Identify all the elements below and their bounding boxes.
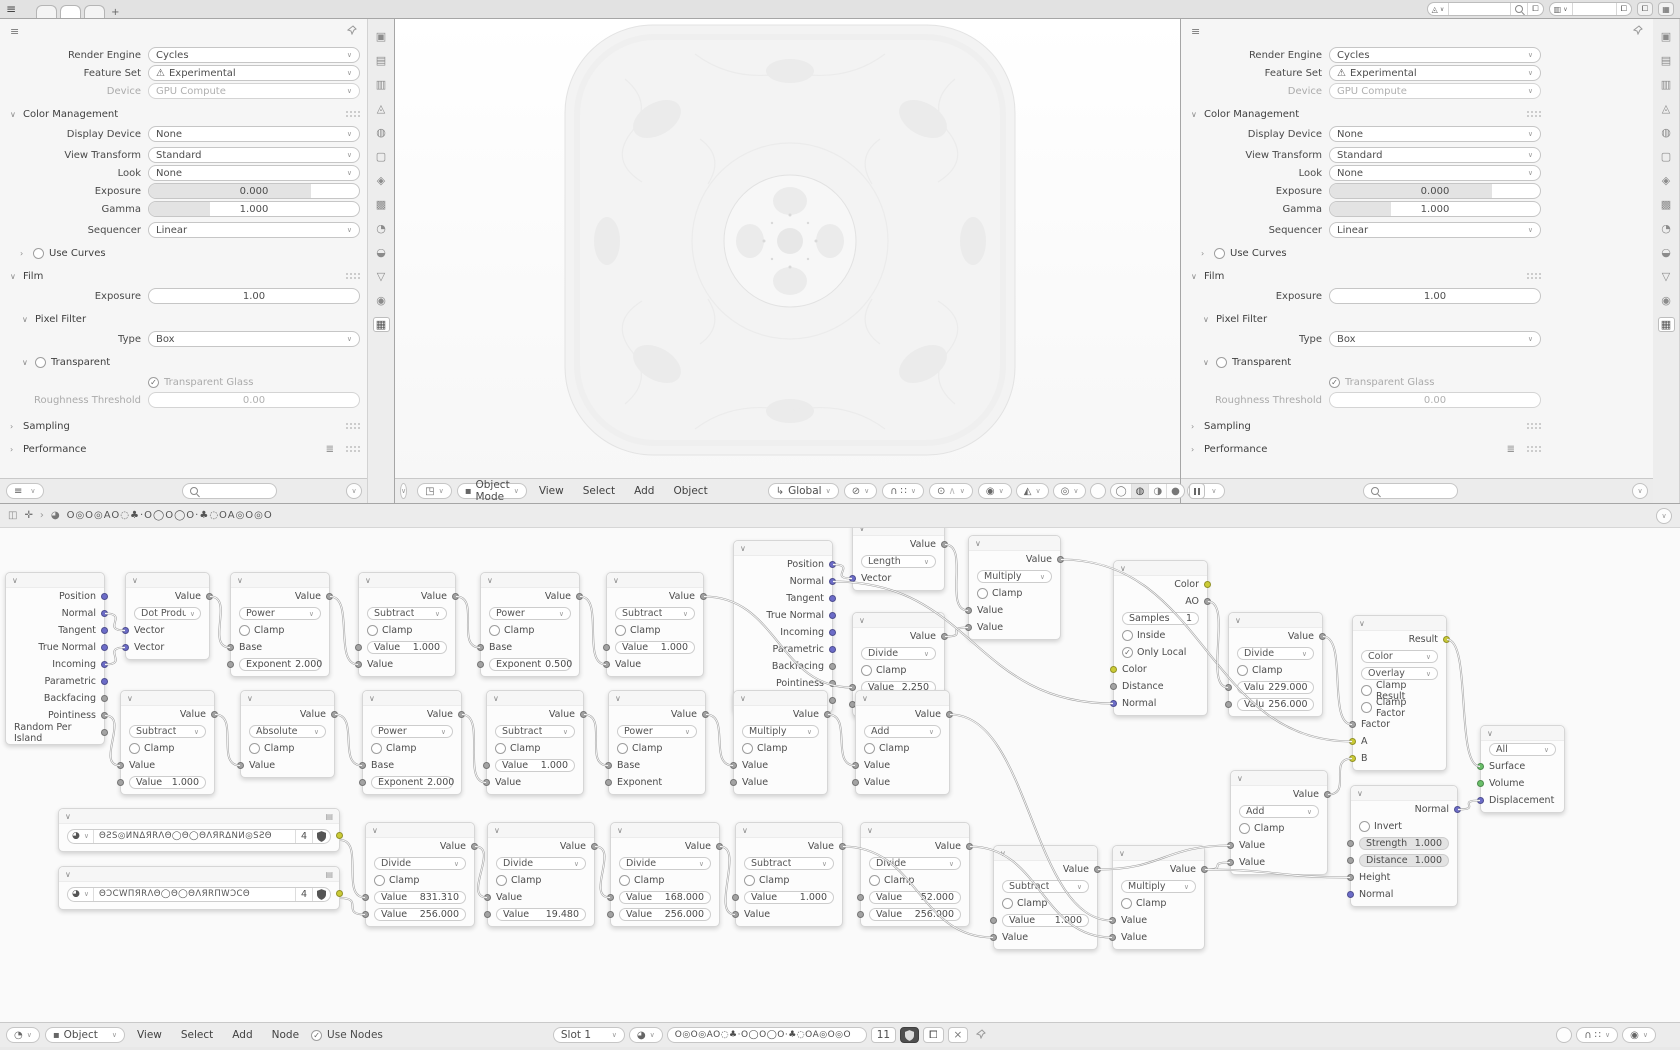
view-layer-tab-icon[interactable]: ◬ [373,101,390,116]
value-field[interactable]: Value1.000 [367,641,447,654]
operation-select[interactable]: Subtract∨ [129,725,206,738]
input-socket[interactable] [852,762,859,769]
collapse-chevron-icon[interactable]: ∨ [494,826,500,835]
value-field[interactable]: Value1.000 [615,641,695,654]
input-socket[interactable] [852,779,859,786]
value-field[interactable]: Value1.000 [1002,914,1089,927]
input-socket[interactable] [484,894,491,901]
value-field[interactable]: Value168.000 [619,891,711,904]
collapse-chevron-icon[interactable]: ∨ [132,576,138,585]
operation-select[interactable]: Overlay∨ [1361,667,1438,680]
input-socket[interactable] [605,762,612,769]
render-engine-select[interactable]: Cycles∨ [1329,47,1541,63]
math-subtract-node[interactable]: ∨ValueSubtract∨ClampValue1.000Value [993,845,1098,950]
modifiers-tab-icon[interactable]: ▩ [1658,197,1675,212]
input-socket[interactable] [359,762,366,769]
math-add-node[interactable]: ∨ValueAdd∨ClampValueValue [1230,770,1328,875]
math-divide-node[interactable]: ∨ValueDivide∨ClampValue831.310Value256.0… [365,822,475,927]
output-socket[interactable] [331,711,338,718]
input-socket[interactable] [122,644,129,651]
output-socket[interactable] [946,711,953,718]
value-field[interactable]: Value831.310 [374,891,466,904]
section-film[interactable]: ∨Film [10,268,360,284]
show-gizmo-toggle[interactable]: ◉∨ [978,483,1012,499]
input-socket[interactable] [990,917,997,924]
overlays-toggle[interactable]: ◉∨ [1622,1027,1656,1043]
modifiers-tab-icon[interactable]: ▩ [373,197,390,212]
input-socket[interactable] [849,684,856,691]
workspace-tab[interactable] [60,5,81,18]
output-socket[interactable] [101,661,108,668]
clamp-factor-checkbox[interactable] [1361,702,1372,713]
section-use-curves[interactable]: › Use Curves [1201,245,1541,261]
material-output-node[interactable]: ∨All∨SurfaceVolumeDisplacement [1480,725,1565,813]
input-socket[interactable] [1110,700,1117,707]
input-socket[interactable] [857,911,864,918]
math-power-node[interactable]: ∨ValuePower∨ClampBaseExponent2.000 [362,690,462,795]
input-socket[interactable] [1349,738,1356,745]
collapse-chevron-icon[interactable]: ∨ [12,576,18,585]
bump-node[interactable]: ∨NormalInvertStrength1.000Distance1.000H… [1350,785,1458,907]
image-texture-node[interactable]: ∨▤◕∨ΘƧS◎ИNΔЯRΛΘ◯Θ◯ΘΛЯRΔNИ◎SƧΘ4 [58,808,340,852]
header-options-button[interactable]: ∨ [1656,508,1672,524]
collapse-chevron-icon[interactable]: ∨ [372,826,378,835]
overlays-toggle[interactable]: ◎∨ [1053,483,1087,499]
input-socket[interactable] [355,661,362,668]
output-socket[interactable] [576,593,583,600]
input-socket[interactable] [117,779,124,786]
section-transparent[interactable]: ∨ Transparent [22,354,360,370]
menu-node[interactable]: Node [265,1029,306,1041]
view-transform-select[interactable]: Standard∨ [148,147,360,163]
collapse-chevron-icon[interactable]: ∨ [613,576,619,585]
image-datablock-row[interactable]: ◕∨ΘƧS◎ИNΔЯRΛΘ◯Θ◯ΘΛЯRΔNИ◎SƧΘ4 [67,829,331,844]
use-nodes-checkbox[interactable]: ✓ [311,1030,322,1041]
output-socket[interactable] [101,644,108,651]
film-exposure-field[interactable]: 1.00 [148,288,360,304]
input-socket[interactable] [603,661,610,668]
clamp-checkbox[interactable] [489,625,500,636]
output-socket[interactable] [966,843,973,850]
operation-select[interactable]: Multiply∨ [742,725,819,738]
input-socket[interactable] [483,762,490,769]
output-socket[interactable] [829,646,836,653]
input-socket[interactable] [1109,934,1116,941]
output-socket[interactable] [101,712,108,719]
shading-wireframe-button[interactable]: ◯ [1111,484,1130,498]
input-socket[interactable] [730,779,737,786]
image-name-field[interactable]: ΘƧS◎ИNΔЯRΛΘ◯Θ◯ΘΛЯRΔNИ◎SƧΘ [94,831,295,841]
transparent-glass-checkbox[interactable]: ✓ [1329,377,1340,388]
section-transparent[interactable]: ∨ Transparent [1203,354,1541,370]
value-field[interactable]: Value19.480 [496,908,586,921]
input-socket[interactable] [1477,780,1484,787]
value-field[interactable]: Value256.000 [619,908,711,921]
input-socket[interactable] [1110,683,1117,690]
collapse-chevron-icon[interactable]: ∨ [1359,619,1365,628]
output-socket[interactable] [839,843,846,850]
clamp-checkbox[interactable] [617,743,628,754]
output-socket[interactable] [101,678,108,685]
operation-select[interactable]: Length∨ [861,555,936,568]
math-divide-node[interactable]: ∨ValueDivide∨ClampValu229.000Valu256.000 [1228,612,1323,717]
output-socket[interactable] [101,627,108,634]
clamp-checkbox[interactable] [742,743,753,754]
display-device-select[interactable]: None∨ [1329,126,1541,142]
output-socket[interactable] [829,578,836,585]
users-count[interactable]: 4 [295,830,312,843]
collapse-chevron-icon[interactable]: ∨ [859,616,865,625]
math-divide-node[interactable]: ∨ValueDivide∨ClampValue52.000Value256.00… [860,822,970,927]
input-socket[interactable] [732,911,739,918]
input-socket[interactable] [359,779,366,786]
input-socket[interactable] [607,911,614,918]
output-socket[interactable] [1057,556,1064,563]
object-data-tab-icon[interactable]: ▽ [1658,269,1675,284]
only-local-checkbox[interactable]: ✓ [1122,647,1133,658]
output-socket[interactable] [211,711,218,718]
input-socket[interactable] [1349,755,1356,762]
output-socket[interactable] [829,595,836,602]
tool-tab-icon[interactable]: ▣ [1658,29,1675,44]
preset-list-icon[interactable]: ≣ [1507,444,1515,455]
collapse-chevron-icon[interactable]: ∨ [740,694,746,703]
pixel-filter-type-select[interactable]: Box∨ [148,331,360,347]
menu-view[interactable]: View [130,1029,169,1041]
object-tab-icon[interactable]: ◈ [373,173,390,188]
output-socket[interactable] [101,729,108,736]
exposure-slider[interactable]: 0.000 [1329,183,1541,199]
pin-icon[interactable] [347,25,357,38]
clamp-checkbox[interactable] [619,875,630,886]
math-power-node[interactable]: ∨ValuePower∨ClampBaseExponent2.000 [230,572,330,677]
shading-material-button[interactable]: ◑ [1148,484,1166,498]
tool-tab-icon[interactable]: ▣ [373,29,390,44]
snap-toggle[interactable]: ∩∷∨ [882,483,924,499]
value-field[interactable]: Distance1.000 [1359,854,1449,867]
vector-math-length-node[interactable]: ∨ValueLength∨Vector [852,528,945,591]
ambient-occlusion-node[interactable]: ∨ColorAOSamples1Inside✓Only LocalColorDi… [1113,560,1208,716]
clamp-checkbox[interactable] [129,743,140,754]
input-socket[interactable] [730,762,737,769]
input-socket[interactable] [227,644,234,651]
operation-select[interactable]: Subtract∨ [744,857,834,870]
node-tree-icon[interactable]: ✛ [24,510,32,521]
value-field[interactable]: Exponent2.000 [239,658,321,671]
pin-icon[interactable] [976,1029,986,1042]
output-socket[interactable] [829,561,836,568]
output-tab-icon[interactable]: ▥ [373,77,390,92]
section-performance[interactable]: ›Performance ≣ [1191,441,1541,457]
collapse-chevron-icon[interactable]: ∨ [65,870,71,879]
value-field[interactable]: Samples1 [1122,612,1199,625]
section-color-management[interactable]: ∨Color Management [1191,106,1541,122]
roughness-threshold-field[interactable]: 0.00 [1329,392,1541,408]
math-subtract-node[interactable]: ∨ValueSubtract∨ClampValue1.000Value [358,572,456,677]
clamp-checkbox[interactable] [864,743,875,754]
input-socket[interactable] [605,779,612,786]
output-socket[interactable] [700,593,707,600]
math-subtract-node[interactable]: ∨ValueSubtract∨ClampValue1.000Value [735,822,843,927]
new-view-layer-button[interactable]: ⧠ [1616,3,1631,15]
use-curves-checkbox[interactable] [33,248,44,259]
users-count[interactable]: 4 [295,888,312,901]
collapse-chevron-icon[interactable]: ∨ [742,826,748,835]
operation-select[interactable]: Power∨ [371,725,453,738]
world-tab-icon[interactable]: ▢ [1658,149,1675,164]
shading-solid-button[interactable]: ◍ [1131,484,1149,498]
value-field[interactable]: Valu229.000 [1237,681,1314,694]
input-socket[interactable] [857,894,864,901]
input-socket[interactable] [1347,840,1354,847]
copy-button[interactable]: ⧠ [1637,2,1653,16]
geometry-node[interactable]: ∨PositionNormalTangentTrue NormalIncomin… [733,540,833,713]
gizmos-toggle[interactable]: ◭∨ [1016,483,1049,499]
color-output-socket[interactable] [336,832,343,839]
material-name-field[interactable]: O◎O◎AO◌♣·O◯O◯O·♣◌OA◎O◎O [667,1027,867,1043]
input-socket[interactable] [1110,666,1117,673]
math-multiply-node[interactable]: ∨ValueMultiply∨ClampValueValue [733,690,828,795]
workspace-tab[interactable] [36,5,57,18]
menu-select[interactable]: Select [576,485,622,497]
clamp-checkbox[interactable] [1002,898,1013,909]
clamp-checkbox[interactable] [615,625,626,636]
operation-select[interactable]: Subtract∨ [495,725,575,738]
editor-split-icon[interactable]: ◫ [8,510,17,521]
shading-rendered-button[interactable]: ● [1166,484,1184,498]
operation-select[interactable]: Multiply∨ [1121,880,1196,893]
look-select[interactable]: None∨ [148,165,360,181]
device-select[interactable]: GPU Compute∨ [1329,83,1541,99]
view-layer-selector[interactable]: ▥∨ ⧠ [1549,2,1632,16]
clamp-checkbox[interactable] [371,743,382,754]
output-socket[interactable] [1443,636,1450,643]
render-engine-select[interactable]: Cycles∨ [148,47,360,63]
material-slot-select[interactable]: Slot 1∨ [553,1027,625,1043]
mode-select[interactable]: ▪ Object Mode∨ [457,483,527,499]
gamma-slider[interactable]: 1.000 [1329,201,1541,217]
input-socket[interactable] [965,607,972,614]
pixel-filter-type-select[interactable]: Box∨ [1329,331,1541,347]
operation-select[interactable]: Subtract∨ [1002,880,1089,893]
overlay-toggle[interactable] [1556,1027,1572,1043]
roughness-threshold-field[interactable]: 0.00 [148,392,360,408]
input-socket[interactable] [1109,917,1116,924]
operator-panel-toggle[interactable]: ∨ [400,483,407,499]
value-field[interactable]: Valu256.000 [1237,698,1314,711]
output-socket[interactable] [941,633,948,640]
collapse-chevron-icon[interactable]: ∨ [867,826,873,835]
editor-type-button[interactable]: ◔∨ [6,1027,40,1043]
output-socket[interactable] [941,541,948,548]
render-tab-icon[interactable]: ▤ [373,53,390,68]
math-multiply-node[interactable]: ∨ValueMultiply∨ClampValueValue [1112,845,1205,950]
use-curves-checkbox[interactable] [1214,248,1225,259]
clamp-result-checkbox[interactable] [1361,685,1372,696]
menu-object[interactable]: Object [666,485,714,497]
output-socket[interactable] [1204,598,1211,605]
collapse-chevron-icon[interactable]: ∨ [862,694,868,703]
output-socket[interactable] [591,843,598,850]
math-absolute-node[interactable]: ∨ValueAbsolute∨ClampValue [240,690,335,778]
collapse-chevron-icon[interactable]: ∨ [975,539,981,548]
scene-selector[interactable]: ◬∨ ⧠ [1427,2,1544,16]
input-socket[interactable] [117,762,124,769]
material-tab-icon[interactable]: ◉ [1658,293,1675,308]
mix-color-node[interactable]: ∨ResultColor∨Overlay∨Clamp ResultClamp F… [1352,615,1447,771]
operation-select[interactable]: Divide∨ [1237,647,1314,660]
output-socket[interactable] [829,680,836,687]
input-socket[interactable] [1347,857,1354,864]
texture-tab-icon[interactable]: ▦ [1658,317,1675,332]
texture-tab-icon[interactable]: ▦ [373,317,390,332]
collapse-chevron-icon[interactable]: ∨ [740,544,746,553]
input-socket[interactable] [965,624,972,631]
output-socket[interactable] [101,610,108,617]
operation-select[interactable]: Add∨ [1239,805,1319,818]
color-output-socket[interactable] [336,890,343,897]
math-power-node[interactable]: ∨ValuePower∨ClampBaseExponent [608,690,706,795]
collapse-chevron-icon[interactable]: ∨ [237,576,243,585]
collapse-chevron-icon[interactable]: ∨ [1000,849,1006,858]
input-socket[interactable] [1347,874,1354,881]
operation-select[interactable]: Subtract∨ [367,607,447,620]
operation-select[interactable]: Subtract∨ [615,607,695,620]
collapse-chevron-icon[interactable]: ∨ [247,694,253,703]
section-performance[interactable]: ›Performance ≣ [10,441,360,457]
feature-set-select[interactable]: ⚠ Experimental∨ [1329,65,1541,81]
output-socket[interactable] [829,663,836,670]
clamp-checkbox[interactable] [495,743,506,754]
material-users-count[interactable]: 11 [871,1027,896,1043]
operation-select[interactable]: All∨ [1489,743,1556,756]
collapse-chevron-icon[interactable]: ∨ [127,694,133,703]
feature-set-select[interactable]: ⚠ Experimental∨ [148,65,360,81]
input-socket[interactable] [849,575,856,582]
node-editor-canvas[interactable]: ∨PositionNormalTangentTrue NormalIncomin… [0,528,1680,1022]
operation-select[interactable]: Power∨ [489,607,571,620]
transparent-glass-checkbox[interactable]: ✓ [148,377,159,388]
value-field[interactable]: Value1.000 [129,776,206,789]
input-socket[interactable] [1227,859,1234,866]
output-socket[interactable] [829,697,836,704]
output-socket[interactable] [829,629,836,636]
collapse-chevron-icon[interactable]: ∨ [493,694,499,703]
clamp-checkbox[interactable] [1121,898,1132,909]
clamp-checkbox[interactable] [374,875,385,886]
collapse-chevron-icon[interactable]: ∨ [1120,564,1126,573]
film-exposure-field[interactable]: 1.00 [1329,288,1541,304]
collapse-chevron-icon[interactable]: ∨ [369,694,375,703]
output-socket[interactable] [716,843,723,850]
value-field[interactable]: Exponent0.500 [489,658,571,671]
output-socket[interactable] [471,843,478,850]
operation-select[interactable]: Divide∨ [861,647,936,660]
input-socket[interactable] [1477,763,1484,770]
image-texture-node[interactable]: ∨▤◕∨ΘƆCWΠЯRΛΘ◯Θ◯ΘΛЯRΠWƆCΘ4 [58,866,340,910]
render-tab-icon[interactable]: ▤ [1658,53,1675,68]
math-subtract-node[interactable]: ∨ValueSubtract∨ClampValue1.000Value [486,690,584,795]
collapse-chevron-icon[interactable]: ∨ [617,826,623,835]
view-layer-tab-icon[interactable]: ◬ [1658,101,1675,116]
operation-select[interactable]: Absolute∨ [249,725,326,738]
menu-add[interactable]: Add [225,1029,259,1041]
view-transform-select[interactable]: Standard∨ [1329,147,1541,163]
math-subtract-node[interactable]: ∨ValueSubtract∨ClampValueValue1.000 [120,690,215,795]
math-multiply-node[interactable]: ∨ValueMultiply∨ClampValueValue [968,535,1061,640]
fake-user-shield-button[interactable] [312,830,330,843]
transparent-checkbox[interactable] [1216,357,1227,368]
input-socket[interactable] [1347,891,1354,898]
clamp-checkbox[interactable] [977,588,988,599]
clamp-checkbox[interactable] [496,875,507,886]
math-add-node[interactable]: ∨ValueAdd∨ClampValueValue [855,690,950,795]
output-socket[interactable] [1319,633,1326,640]
output-socket[interactable] [1324,791,1331,798]
input-socket[interactable] [1227,842,1234,849]
output-socket[interactable] [101,593,108,600]
view-layer-name-field[interactable] [1572,3,1616,15]
math-power-node[interactable]: ∨ValuePower∨ClampBaseExponent0.500 [480,572,580,677]
input-socket[interactable] [1225,684,1232,691]
proportional-editing-toggle[interactable]: ⊙∧∨ [929,483,973,499]
menu-select[interactable]: Select [174,1029,220,1041]
collapse-chevron-icon[interactable]: ∨ [65,812,71,821]
shader-type-select[interactable]: ▪ Object∨ [45,1027,125,1043]
value-field[interactable]: Strength1.000 [1359,837,1449,850]
input-socket[interactable] [362,911,369,918]
output-socket[interactable] [702,711,709,718]
collapse-chevron-icon[interactable]: ∨ [365,576,371,585]
display-device-select[interactable]: None∨ [148,126,360,142]
clamp-checkbox[interactable] [249,743,260,754]
operation-select[interactable]: Divide∨ [619,857,711,870]
clamp-checkbox[interactable] [1237,665,1248,676]
remove-button[interactable]: ▦ [1658,2,1674,16]
operation-select[interactable]: Divide∨ [496,857,586,870]
output-socket[interactable] [824,711,831,718]
input-socket[interactable] [990,934,997,941]
section-sampling[interactable]: ›Sampling [10,418,360,434]
unlink-button[interactable]: × [948,1027,969,1043]
filter-options-button[interactable]: ∨ [1632,483,1648,499]
output-socket[interactable] [1201,866,1208,873]
collapse-chevron-icon[interactable]: ∨ [1119,849,1125,858]
collapse-chevron-icon[interactable]: ∨ [487,576,493,585]
output-socket[interactable] [1204,581,1211,588]
particles-tab-icon[interactable]: ◔ [373,221,390,236]
section-sampling[interactable]: ›Sampling [1191,418,1541,434]
value-field[interactable]: Value256.000 [869,908,961,921]
output-socket[interactable] [206,593,213,600]
physics-tab-icon[interactable]: ◒ [1658,245,1675,260]
operation-select[interactable]: Multiply∨ [977,570,1052,583]
input-socket[interactable] [355,644,362,651]
value-field[interactable]: Exponent2.000 [371,776,453,789]
menu-icon[interactable]: ≡ [6,2,16,16]
sequencer-select[interactable]: Linear∨ [148,222,360,238]
exposure-slider[interactable]: 0.000 [148,183,360,199]
clamp-checkbox[interactable] [744,875,755,886]
physics-tab-icon[interactable]: ◒ [373,245,390,260]
operation-select[interactable]: Divide∨ [869,857,961,870]
value-field[interactable]: Value256.000 [374,908,466,921]
clamp-checkbox[interactable] [239,625,250,636]
search-input[interactable] [182,483,277,499]
menu-view[interactable]: View [532,485,571,497]
value-field[interactable]: Value1.000 [744,891,834,904]
input-socket[interactable] [483,779,490,786]
